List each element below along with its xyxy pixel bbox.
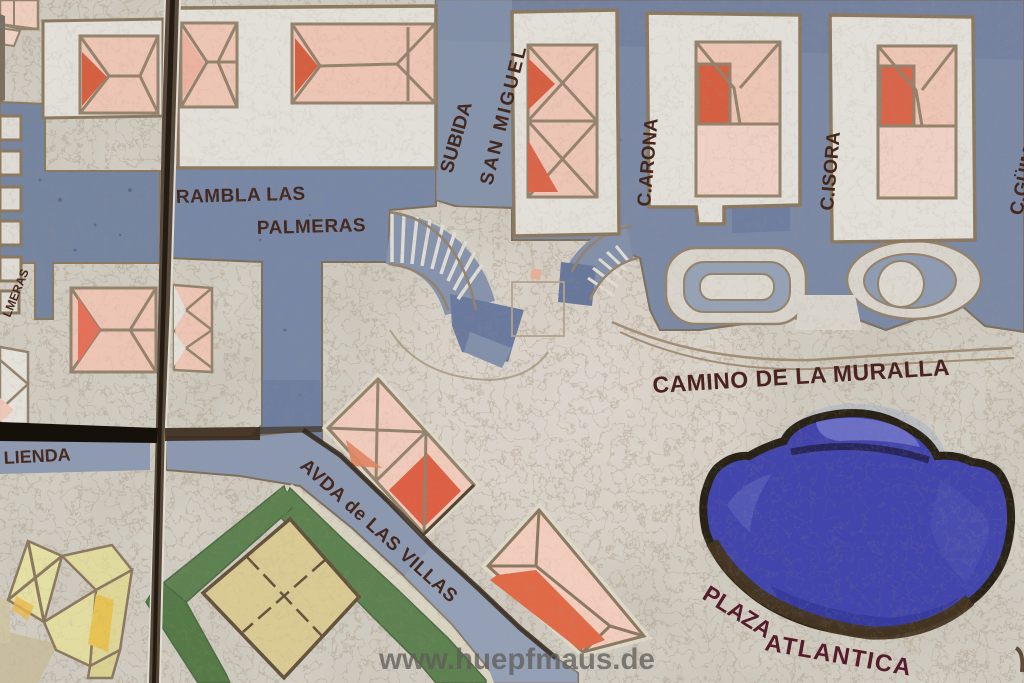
svg-text:www.huepfmaus.de: www.huepfmaus.de — [378, 643, 655, 676]
